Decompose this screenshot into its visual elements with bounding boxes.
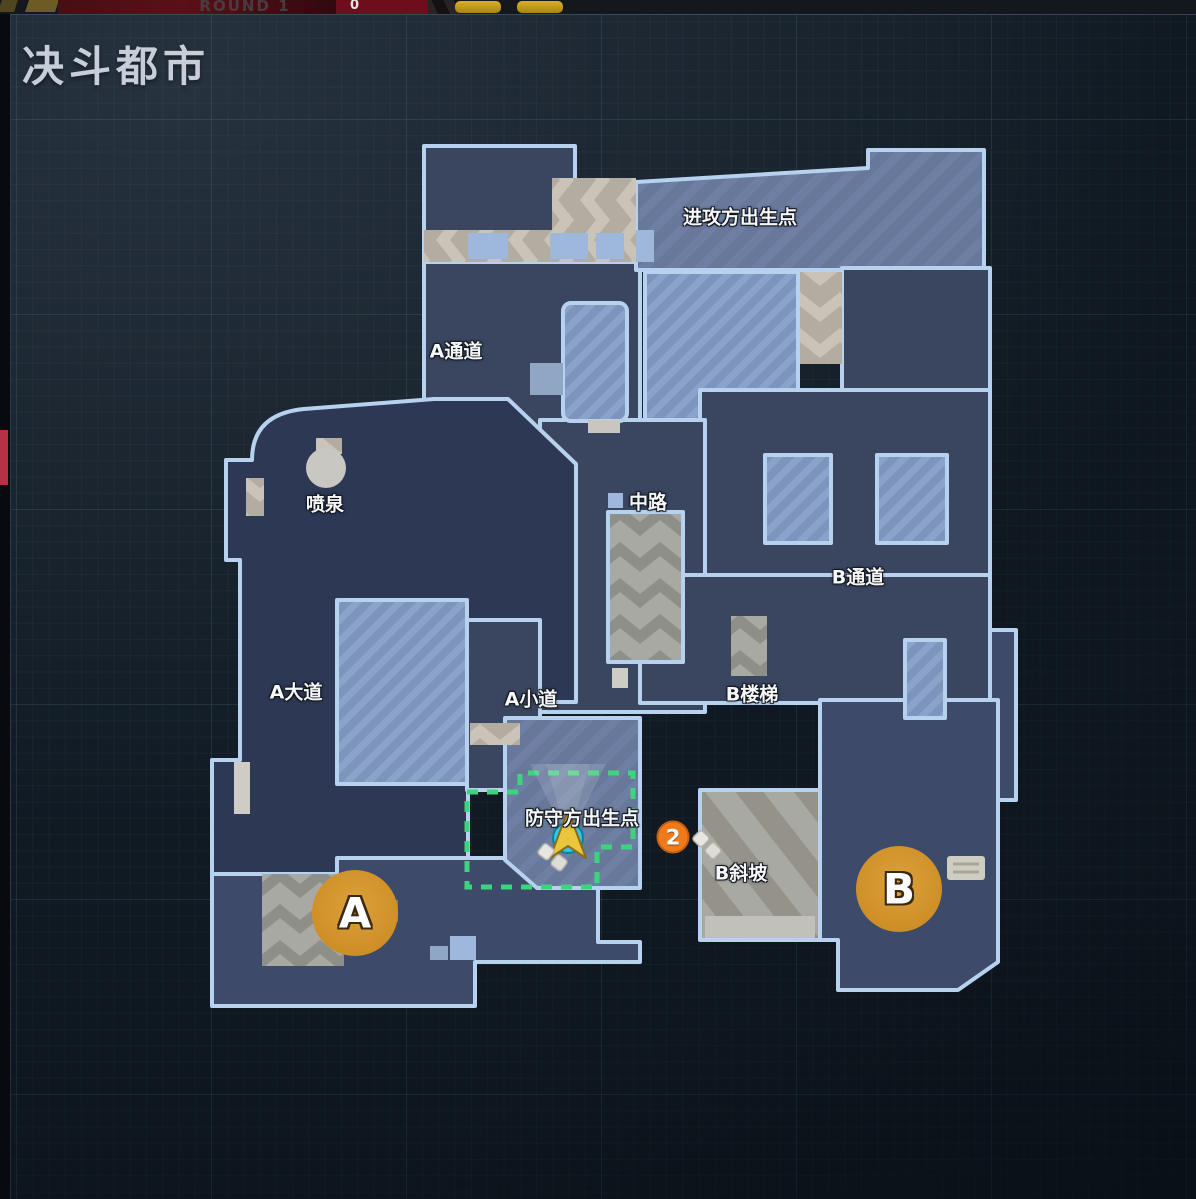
building-a-hatched bbox=[337, 600, 467, 784]
stairs-b-chevrons bbox=[731, 616, 767, 676]
ping-marker-2[interactable]: 2 bbox=[657, 821, 690, 854]
window-light bbox=[596, 233, 624, 259]
site-a-letter: A bbox=[339, 889, 372, 938]
label-b-stairs: B楼梯 bbox=[726, 680, 778, 707]
door-gray bbox=[234, 762, 250, 814]
note-icon bbox=[947, 856, 985, 880]
building-mid-hatched bbox=[563, 303, 627, 421]
chevron-strip-right bbox=[800, 272, 842, 364]
zone-b-site-room bbox=[820, 700, 998, 990]
door-gray bbox=[588, 420, 620, 433]
site-b-letter: B bbox=[883, 865, 915, 914]
label-b-passage: B通道 bbox=[832, 563, 884, 590]
label-mid: 中路 bbox=[629, 488, 667, 515]
door-gray bbox=[612, 668, 628, 688]
building-b-window-3 bbox=[905, 640, 945, 718]
window-light bbox=[468, 233, 508, 259]
map-title: 决斗都市 bbox=[22, 33, 210, 94]
window-light bbox=[636, 230, 654, 262]
chevron-small-left bbox=[246, 478, 264, 516]
label-attacker-spawn: 进攻方出生点 bbox=[683, 203, 797, 230]
zone-topright-room bbox=[842, 268, 990, 390]
building-b-window-2 bbox=[877, 455, 947, 543]
chevron-a-path bbox=[470, 723, 520, 745]
crate-small bbox=[450, 936, 476, 960]
label-defender-spawn: 防守方出生点 bbox=[525, 804, 639, 831]
ramp-b-landing bbox=[705, 916, 815, 938]
minimap-canvas[interactable] bbox=[0, 0, 1196, 1199]
mid-label-square bbox=[608, 493, 623, 508]
label-a-path: A小道 bbox=[505, 685, 558, 712]
ramp-mid bbox=[608, 512, 683, 662]
label-fountain: 喷泉 bbox=[306, 490, 344, 517]
chevron-strip-top bbox=[552, 178, 636, 230]
fountain-circle bbox=[306, 448, 346, 488]
building-b-window-1 bbox=[765, 455, 831, 543]
crate-small bbox=[430, 946, 448, 960]
label-a-avenue: A大道 bbox=[270, 678, 323, 705]
window-light bbox=[550, 233, 588, 259]
label-b-ramp: B斜坡 bbox=[715, 859, 767, 886]
mid-building-tab bbox=[530, 363, 563, 395]
game-screen: { "hud": { "round_label": "ROUND 1", "sc… bbox=[0, 0, 1196, 1199]
label-a-passage: A通道 bbox=[430, 337, 483, 364]
